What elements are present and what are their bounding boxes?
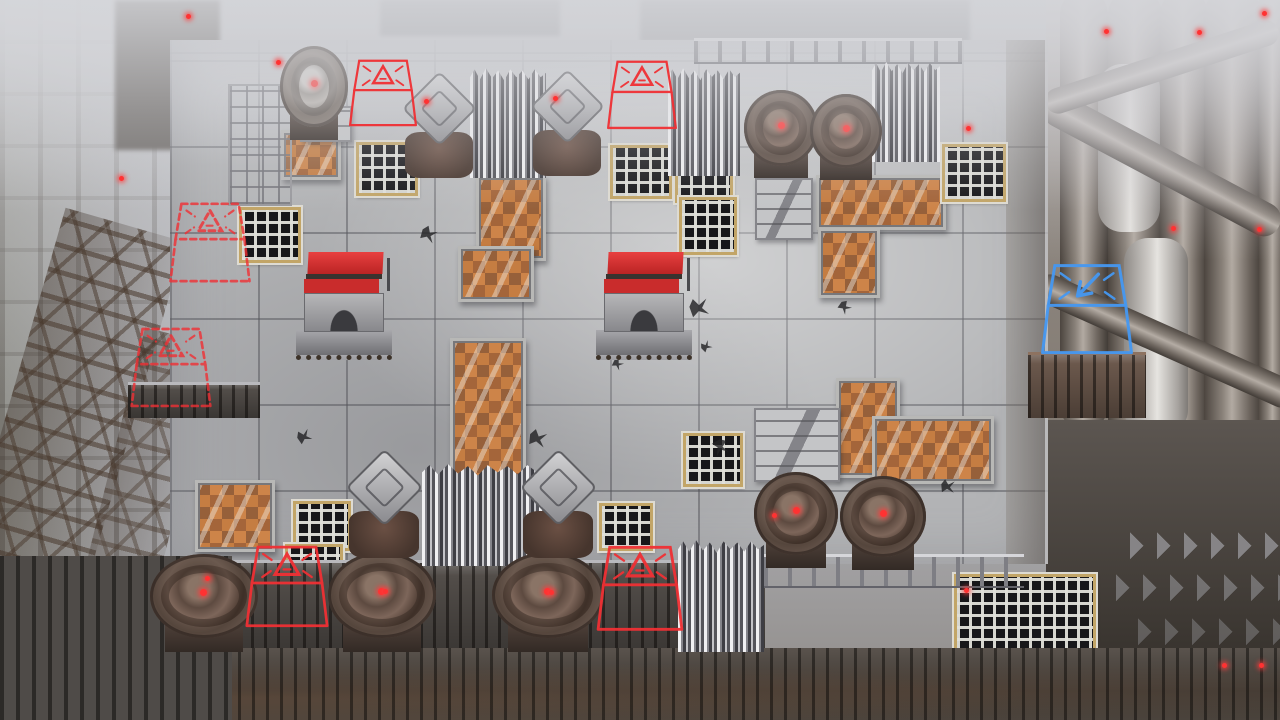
diamond-machine — [524, 76, 610, 176]
turbine-rotor — [492, 552, 604, 638]
board-items-layer — [0, 0, 1280, 720]
turbine-machine — [744, 90, 818, 178]
diamond-inner — [364, 467, 404, 507]
red-light — [1262, 11, 1267, 16]
diamond-inner — [420, 89, 459, 128]
turbine-machine — [280, 46, 348, 140]
red-light — [549, 590, 554, 595]
crate-stack — [754, 408, 840, 482]
red-light — [383, 589, 388, 594]
crack-decal — [417, 222, 440, 245]
spawn-bottom-left[interactable] — [236, 542, 338, 636]
red-indicator-light — [778, 122, 785, 129]
turret-arch — [627, 305, 662, 331]
turret-arch — [327, 305, 362, 331]
red-indicator-light — [880, 510, 887, 517]
crate-stack — [755, 178, 813, 240]
diamond-machine — [340, 456, 428, 558]
spawn-left-lower[interactable] — [128, 324, 214, 416]
red-light — [964, 588, 969, 593]
spawn-top-middle[interactable] — [606, 48, 678, 146]
warning-triangle-icon — [198, 211, 222, 231]
turret-red-top — [607, 252, 683, 274]
red-light — [424, 99, 429, 104]
crack-decal — [293, 425, 315, 447]
turret-base — [596, 330, 692, 360]
red-light — [119, 176, 124, 181]
warning-triangle-icon — [628, 554, 653, 575]
turbine-machine — [754, 472, 838, 568]
crack-decal — [835, 297, 855, 317]
red-turret — [596, 252, 692, 360]
red-indicator-light — [793, 507, 800, 514]
red-light — [772, 513, 777, 518]
warning-triangle-icon — [632, 67, 652, 84]
crack-decal — [526, 426, 549, 449]
crack-decal — [698, 338, 715, 355]
turbine-rotor — [744, 90, 818, 166]
red-light — [276, 60, 281, 65]
turbine-machine — [328, 552, 436, 652]
hazard-platform — [818, 228, 880, 298]
exit-arrow-icon — [1078, 274, 1099, 296]
diamond-inner — [548, 87, 587, 126]
turbine-rotor — [328, 552, 436, 638]
warning-triangle-icon — [275, 554, 299, 575]
red-light — [205, 576, 210, 581]
diamond-machine — [514, 456, 602, 558]
turret-antenna — [687, 258, 690, 290]
turret-body — [604, 293, 685, 332]
red-light — [966, 126, 971, 131]
red-light — [1259, 663, 1264, 668]
turbine-machine — [492, 552, 604, 652]
turbine-rotor — [840, 476, 926, 557]
turbine-machine — [810, 94, 882, 180]
vent-grate — [610, 145, 672, 199]
red-light — [1171, 226, 1176, 231]
turret-antenna — [387, 258, 390, 290]
turbine-machine — [840, 476, 926, 570]
hazard-platform — [458, 246, 534, 302]
turret-body — [304, 293, 385, 332]
red-light — [1104, 29, 1109, 34]
hazard-platform — [816, 175, 946, 230]
spawn-top-left[interactable] — [348, 46, 418, 144]
pipe-fence — [678, 538, 764, 652]
turret-base — [296, 330, 392, 360]
turbine-rotor — [280, 46, 348, 127]
vent-grate — [679, 197, 737, 255]
turbine-rotor — [810, 94, 882, 168]
red-light — [1257, 227, 1262, 232]
spawn-bottom-middle[interactable] — [594, 542, 686, 640]
pipe-fence — [668, 66, 740, 176]
turret-red-mid — [604, 279, 679, 293]
guard-rail — [694, 38, 962, 64]
spawn-left-upper[interactable] — [168, 198, 252, 292]
pipe-fence — [872, 60, 940, 162]
red-light — [1197, 30, 1202, 35]
diamond-inner — [538, 467, 578, 507]
red-indicator-light — [200, 589, 207, 596]
game-scene — [0, 0, 1280, 720]
warning-triangle-icon — [373, 66, 393, 83]
warning-triangle-icon — [159, 336, 182, 356]
vent-grate — [942, 144, 1006, 202]
red-light — [186, 14, 191, 19]
red-light — [553, 96, 558, 101]
objective-right[interactable] — [1038, 260, 1136, 364]
red-indicator-light — [843, 125, 850, 132]
red-turret — [296, 252, 392, 360]
turret-red-top — [307, 252, 383, 274]
red-light — [1222, 663, 1227, 668]
red-indicator-light — [311, 80, 318, 87]
vent-grate — [683, 433, 743, 487]
turret-red-mid — [304, 279, 379, 293]
turbine-rotor — [754, 472, 838, 555]
hazard-platform — [872, 416, 994, 484]
